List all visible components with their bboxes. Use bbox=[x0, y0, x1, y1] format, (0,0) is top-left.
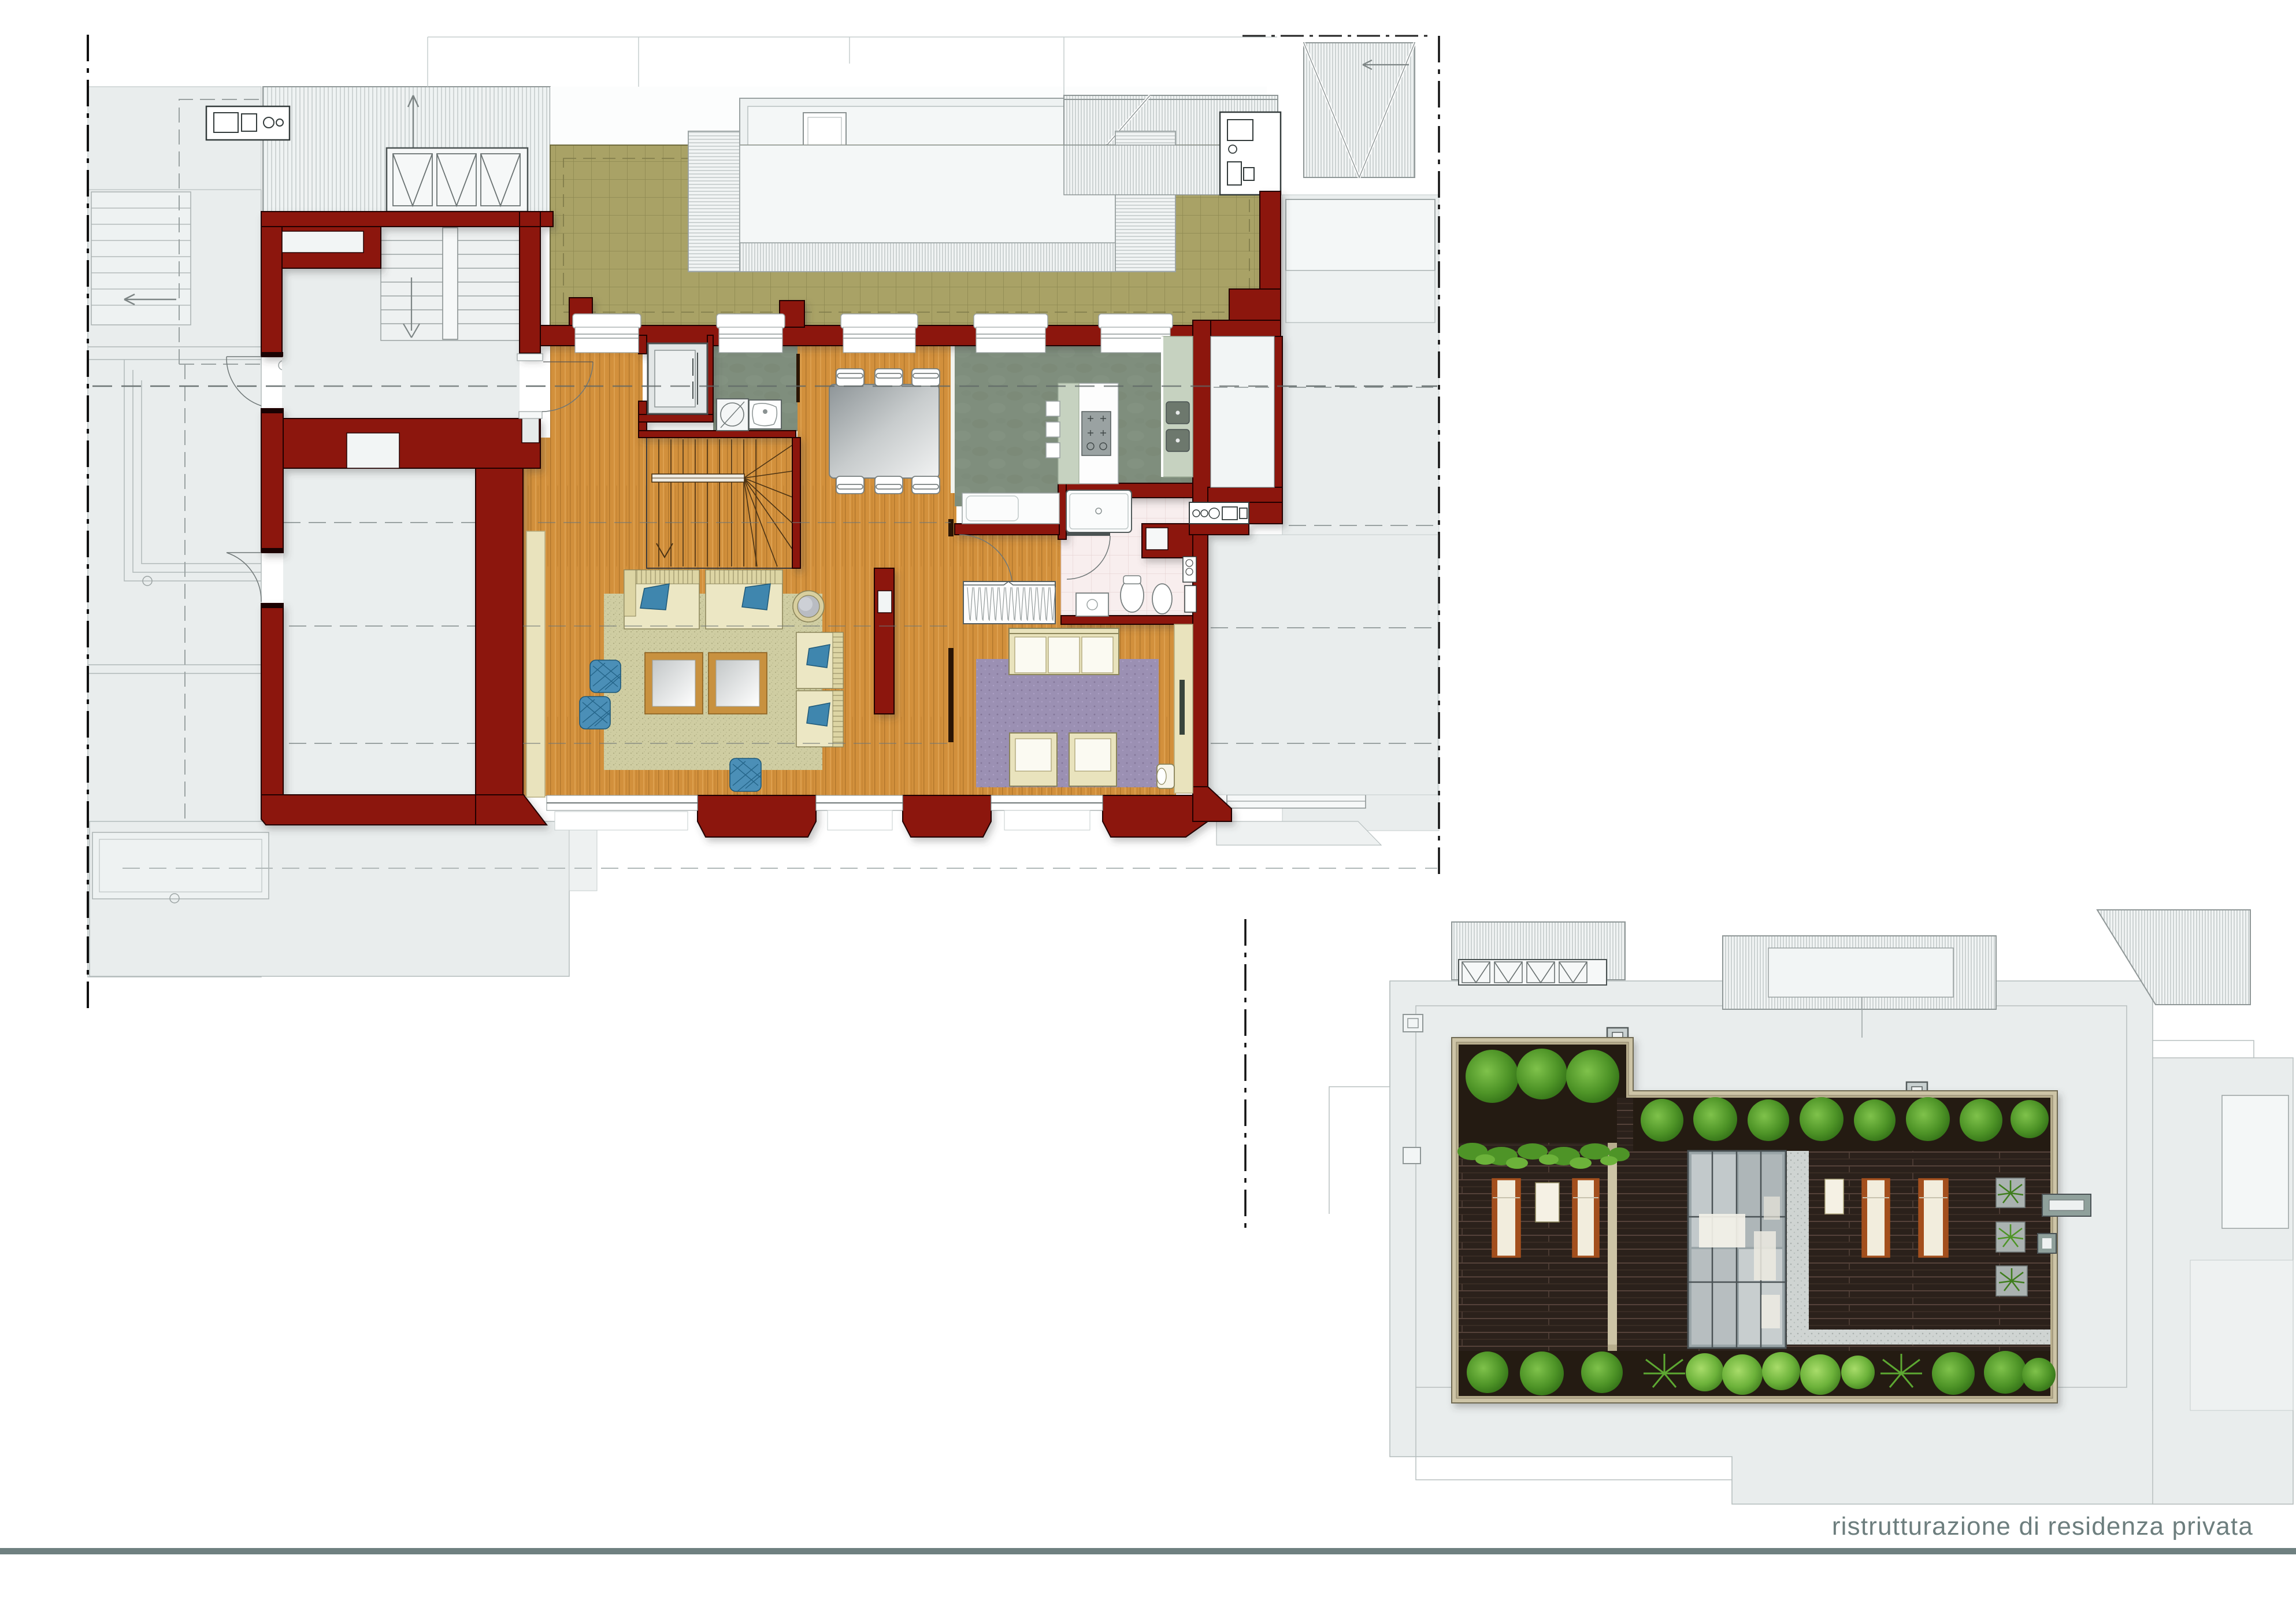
svg-text:ristrutturazione di residenza: ristrutturazione di residenza privata bbox=[1832, 1512, 2253, 1540]
